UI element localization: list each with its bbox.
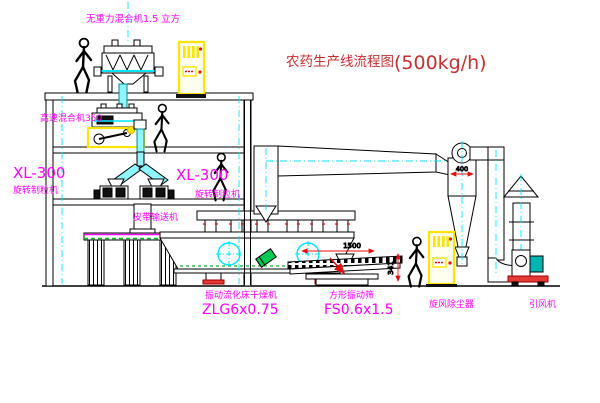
label-granulator-right-model: XL-300 bbox=[176, 166, 228, 184]
drawing-title: 农药生产线流程图 (500kg/h) bbox=[286, 52, 487, 74]
label-dryer-model: ZLG6x0.75 bbox=[202, 302, 279, 318]
induced-draft-fan bbox=[508, 250, 548, 286]
person-mid-floor bbox=[154, 104, 168, 151]
gravity-free-mixer bbox=[94, 40, 163, 112]
dim-cyclone-inlet: 400 bbox=[456, 165, 468, 173]
person-top-floor bbox=[75, 39, 91, 92]
label-screen-model: FS0.6x1.5 bbox=[324, 302, 394, 318]
title-text: 农药生产线流程图 bbox=[286, 54, 394, 70]
dryer-ports bbox=[203, 220, 350, 232]
label-mixer-mid: 高速混合机350 bbox=[40, 112, 102, 124]
y-splitter-pipe bbox=[108, 152, 168, 187]
rotary-granulator-left bbox=[94, 186, 128, 199]
rotary-granulator-right bbox=[140, 186, 174, 199]
person-ground-floor bbox=[409, 237, 424, 286]
fluid-bed-dryer bbox=[160, 211, 355, 284]
label-fan: 引风机 bbox=[529, 298, 556, 310]
process-flow-canvas: 400 1500 341 bbox=[0, 0, 600, 403]
title-capacity: (500kg/h) bbox=[394, 52, 487, 74]
label-granulator-right-name: 旋转制粒机 bbox=[195, 188, 240, 200]
dim-screen-length: 1500 bbox=[343, 242, 361, 250]
label-dryer-name: 振动流化床干燥机 bbox=[205, 289, 277, 301]
control-cabinet-2 bbox=[426, 232, 457, 287]
label-screen-name: 方形振动筛 bbox=[329, 289, 374, 301]
label-mixer-top: 无重力混合机1.5 立方 bbox=[86, 13, 180, 25]
label-cyclone: 旋风除尘器 bbox=[429, 298, 474, 310]
control-cabinet-1 bbox=[176, 42, 206, 98]
label-granulator-left-model: XL-300 bbox=[13, 164, 65, 182]
dim-screen-height: 341 bbox=[387, 261, 395, 274]
process-flow-diagram: 400 1500 341 bbox=[0, 0, 600, 403]
label-granulator-left-name: 旋转制粒机 bbox=[13, 184, 58, 196]
label-belt-conveyor: 皮带输送机 bbox=[133, 211, 178, 223]
